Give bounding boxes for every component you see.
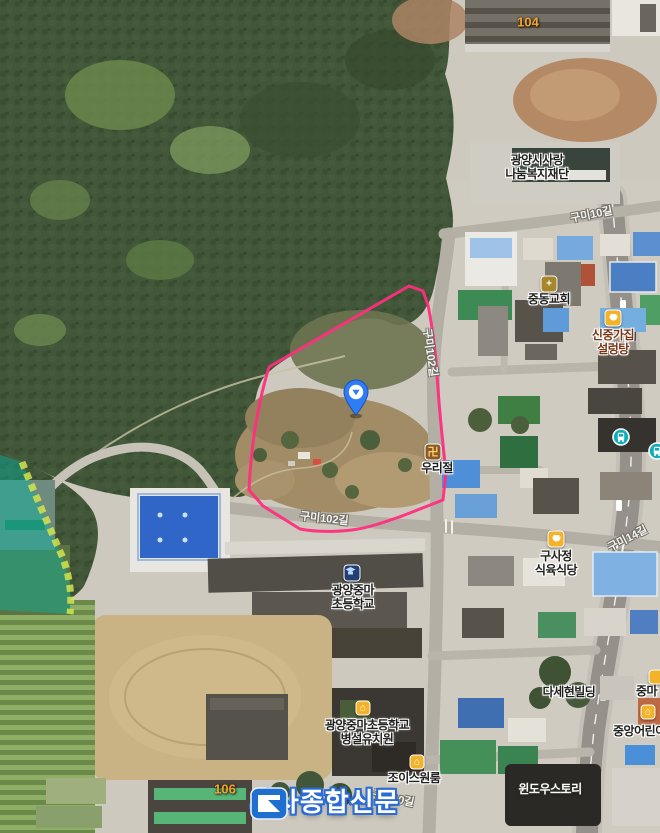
poi-label-daycare[interactable]: 중앙어린이집 bbox=[613, 724, 660, 738]
poi-label-church[interactable]: 중동교회 bbox=[528, 292, 570, 306]
poi-label-temple[interactable]: 우리절 bbox=[421, 461, 453, 475]
building-label-windowstory[interactable]: 윈도우스토리 bbox=[518, 782, 581, 796]
apartment-block-number: 104 bbox=[517, 15, 539, 30]
building-label-dasehyun[interactable]: 다세현빌딩 bbox=[543, 685, 596, 699]
poi-label-jungma-partial[interactable]: 중마 bbox=[636, 684, 657, 698]
church-icon[interactable]: + bbox=[541, 276, 558, 293]
restaurant-icon[interactable] bbox=[605, 310, 622, 327]
temple-icon[interactable]: 卍 bbox=[425, 444, 442, 461]
school-icon[interactable] bbox=[344, 565, 361, 582]
satellite-base-layer bbox=[0, 0, 660, 833]
poi-label-butcher-restaurant[interactable]: 구사정 식육식당 bbox=[535, 549, 577, 577]
daycare-icon[interactable]: ⌂ bbox=[641, 705, 656, 720]
home-icon[interactable]: ⌂ bbox=[410, 755, 425, 770]
satellite-map-canvas[interactable]: + 卍 ⌂ ⌂ ⌂ 104 106 광양시 bbox=[0, 0, 660, 833]
restaurant-icon[interactable] bbox=[548, 531, 565, 548]
kindergarten-icon[interactable]: ⌂ bbox=[356, 701, 371, 716]
apartment-block-number: 106 bbox=[214, 782, 236, 797]
poi-icon[interactable] bbox=[649, 670, 660, 685]
poi-label-oneroom[interactable]: 조이스원룸 bbox=[388, 771, 441, 785]
poi-label-welfare-foundation[interactable]: 광양시사랑 나눔복지재단 bbox=[505, 153, 568, 181]
poi-label-elementary-school[interactable]: 광양중마 초등학교 bbox=[332, 583, 374, 611]
newspaper-logo-icon bbox=[250, 787, 288, 820]
poi-label-restaurant[interactable]: 신중가집 설렁탕 bbox=[592, 328, 634, 356]
poi-label-kindergarten[interactable]: 광양중마초등학교 병설유치원 bbox=[325, 718, 409, 746]
newspaper-watermark: 시사종합신문 bbox=[250, 787, 400, 817]
